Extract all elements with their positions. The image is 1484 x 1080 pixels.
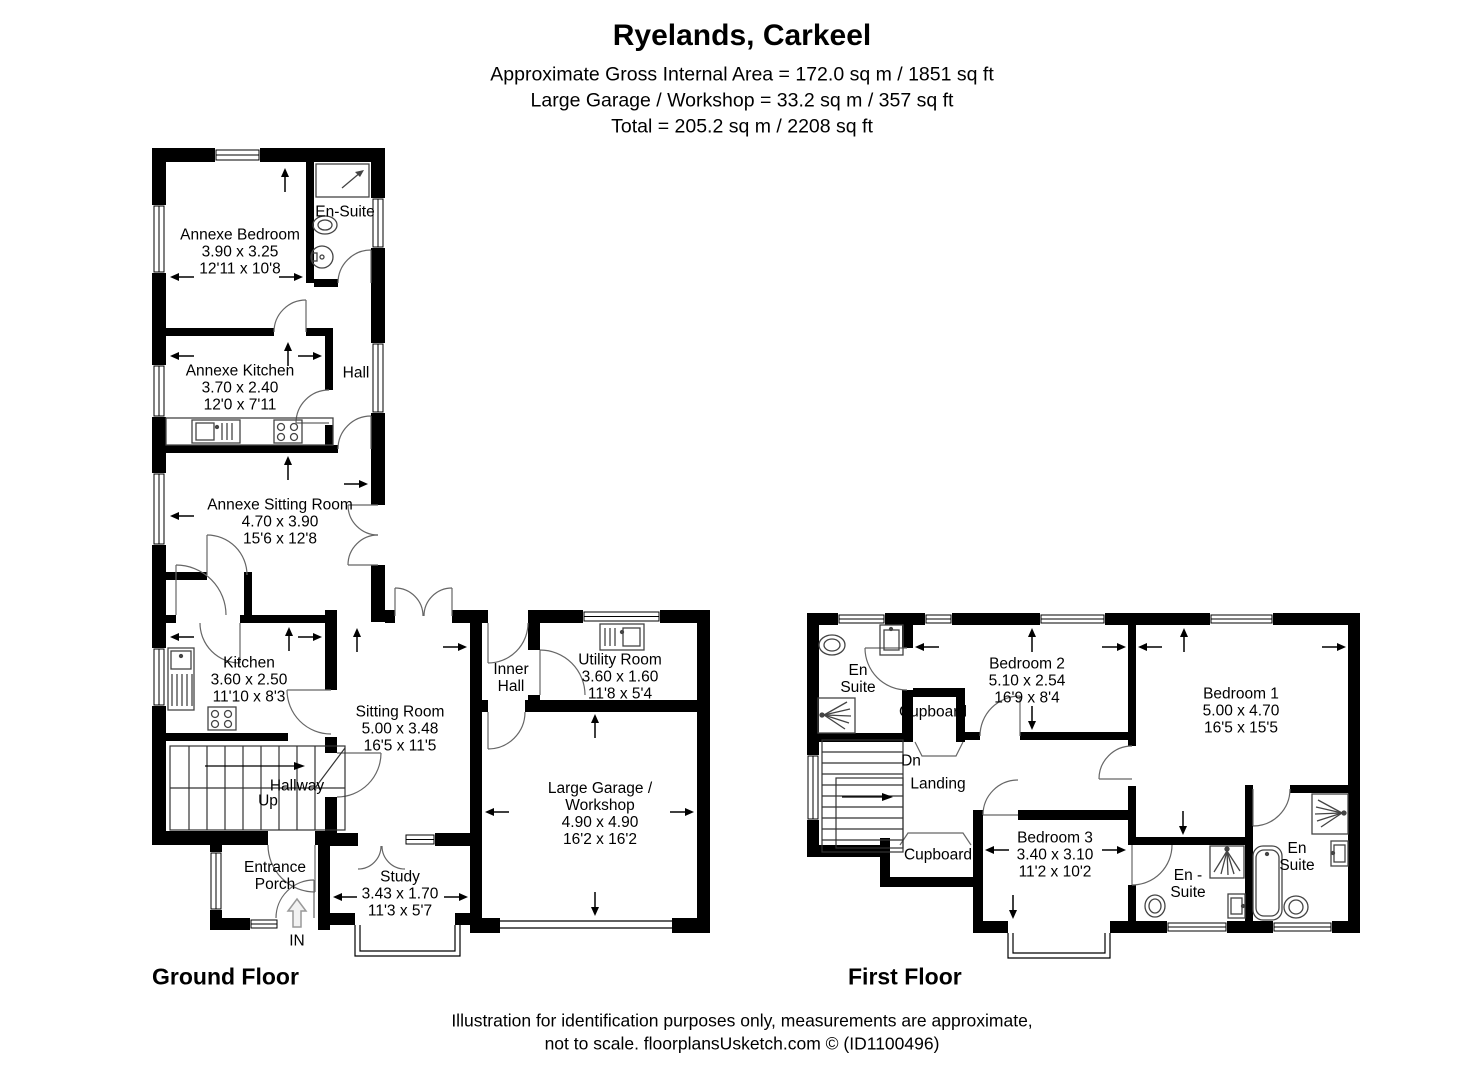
room-size-metric: 3.40 x 3.10 xyxy=(1017,847,1094,864)
room-name: Suite xyxy=(840,679,875,696)
room-name: Hall xyxy=(343,365,370,382)
room-name: En - xyxy=(1170,867,1205,884)
entrance-in-label: IN xyxy=(289,933,305,950)
room-size-imperial: 12'11 x 10'8 xyxy=(180,261,300,278)
room-name: Bedroom 3 xyxy=(1017,830,1094,847)
room-name: Up xyxy=(258,793,278,810)
room-label-annexe-bedroom: Annexe Bedroom 3.90 x 3.25 12'11 x 10'8 xyxy=(180,227,300,278)
room-label-bedroom-1: Bedroom 1 5.00 x 4.70 16'5 x 15'5 xyxy=(1203,686,1280,737)
room-name: Entrance xyxy=(244,859,306,876)
room-label-entrance-porch: Entrance Porch xyxy=(244,859,306,893)
folding-door xyxy=(915,742,963,756)
room-name: Cupboard xyxy=(904,847,972,864)
garage-door xyxy=(500,921,672,928)
utility-sink-icon xyxy=(600,624,644,650)
room-size-imperial: 15'6 x 12'8 xyxy=(207,531,353,548)
bath-icon xyxy=(1253,846,1282,920)
toilet-icon xyxy=(819,635,845,655)
floorplan-page: Ryelands, Carkeel Approximate Gross Inte… xyxy=(0,0,1484,1080)
room-size-metric: 3.60 x 1.60 xyxy=(578,669,662,686)
gross-internal-area: Approximate Gross Internal Area = 172.0 … xyxy=(490,64,993,87)
first-floor-plan xyxy=(807,613,1360,958)
toilet-icon xyxy=(1145,895,1165,917)
room-label-utility-room: Utility Room 3.60 x 1.60 11'8 x 5'4 xyxy=(578,652,662,703)
room-label-bedroom-3: Bedroom 3 3.40 x 3.10 11'2 x 10'2 xyxy=(1017,830,1094,881)
room-label-inner-hall: Inner Hall xyxy=(493,661,528,695)
room-size-metric: 4.90 x 4.90 xyxy=(548,814,652,831)
room-name: Bedroom 2 xyxy=(989,656,1066,673)
shower-icon xyxy=(316,164,369,197)
room-name: Kitchen xyxy=(211,655,288,672)
room-size-metric: 3.60 x 2.50 xyxy=(211,672,288,689)
room-name: Annexe Bedroom xyxy=(180,227,300,244)
room-size-imperial: 11'8 x 5'4 xyxy=(578,686,662,703)
room-size-metric: 3.70 x 2.40 xyxy=(186,380,295,397)
room-size-imperial: 11'10 x 8'3 xyxy=(211,689,288,706)
room-label-en-suite-3: En Suite xyxy=(1279,840,1314,874)
sink-icon xyxy=(311,246,333,268)
room-size-imperial: 16'9 x 8'4 xyxy=(989,690,1066,707)
room-label-annexe-kitchen: Annexe Kitchen 3.70 x 2.40 12'0 x 7'11 xyxy=(186,363,295,414)
room-name: IN xyxy=(289,933,305,950)
room-size-metric: 3.43 x 1.70 xyxy=(362,886,439,903)
room-label-en-suite-2: En - Suite xyxy=(1170,867,1205,901)
room-name: Utility Room xyxy=(578,652,662,669)
room-size-imperial: 11'3 x 5'7 xyxy=(362,903,439,920)
room-name: Dn xyxy=(901,753,921,770)
room-size-metric: 5.00 x 4.70 xyxy=(1203,703,1280,720)
room-name: Workshop xyxy=(548,797,652,814)
shower-icon xyxy=(818,698,855,733)
sink-unit-icon xyxy=(168,648,194,710)
room-name: Porch xyxy=(244,876,306,893)
room-size-metric: 3.90 x 3.25 xyxy=(180,244,300,261)
room-name: Hallway xyxy=(270,778,324,795)
room-label-cupboard-top: Cupboard xyxy=(899,704,967,721)
room-size-metric: 5.00 x 3.48 xyxy=(356,721,445,738)
room-name: Large Garage / xyxy=(548,780,652,797)
room-label-annexe-sitting-room: Annexe Sitting Room 4.70 x 3.90 15'6 x 1… xyxy=(207,497,353,548)
property-title: Ryelands, Carkeel xyxy=(613,19,871,53)
room-name: Annexe Kitchen xyxy=(186,363,295,380)
room-size-metric: 5.10 x 2.54 xyxy=(989,673,1066,690)
room-name: Annexe Sitting Room xyxy=(207,497,353,514)
folding-door xyxy=(900,833,971,845)
toilet-icon xyxy=(1284,896,1308,918)
room-name: Suite xyxy=(1279,857,1314,874)
room-size-imperial: 16'5 x 15'5 xyxy=(1203,720,1280,737)
sink-icon xyxy=(1228,894,1245,918)
room-name: Cupboard xyxy=(899,704,967,721)
sink-icon xyxy=(880,625,903,655)
room-name: En-Suite xyxy=(315,204,374,221)
room-name: Hall xyxy=(493,678,528,695)
room-label-en-suite-annexe: En-Suite xyxy=(315,204,374,221)
room-label-study: Study 3.43 x 1.70 11'3 x 5'7 xyxy=(362,869,439,920)
room-label-landing: Landing xyxy=(910,776,965,793)
disclaimer-line-2: not to scale. floorplansUsketch.com © (I… xyxy=(545,1034,940,1055)
stairs-down-label: Dn xyxy=(901,753,921,770)
bay-window xyxy=(355,925,460,956)
stairs-down xyxy=(822,740,903,852)
room-label-en-suite-1: En Suite xyxy=(840,662,875,696)
room-label-bedroom-2: Bedroom 2 5.10 x 2.54 16'9 x 8'4 xyxy=(989,656,1066,707)
ground-floor-title: Ground Floor xyxy=(152,964,299,991)
room-name: Inner xyxy=(493,661,528,678)
room-name: En xyxy=(840,662,875,679)
total-area: Total = 205.2 sq m / 2208 sq ft xyxy=(611,116,873,139)
room-name: Study xyxy=(362,869,439,886)
room-size-metric: 4.70 x 3.90 xyxy=(207,514,353,531)
room-label-cupboard-bottom: Cupboard xyxy=(904,847,972,864)
bay-window xyxy=(1008,933,1110,958)
stairs-up-label: Up xyxy=(258,793,278,810)
garage-workshop-area: Large Garage / Workshop = 33.2 sq m / 35… xyxy=(531,90,954,113)
room-size-imperial: 11'2 x 10'2 xyxy=(1017,864,1094,881)
hob-icon xyxy=(208,707,236,730)
room-name: Bedroom 1 xyxy=(1203,686,1280,703)
room-label-sitting-room: Sitting Room 5.00 x 3.48 16'5 x 11'5 xyxy=(356,704,445,755)
room-label-garage: Large Garage / Workshop 4.90 x 4.90 16'2… xyxy=(548,780,652,848)
shower-icon xyxy=(1210,846,1244,878)
room-size-imperial: 12'0 x 7'11 xyxy=(186,397,295,414)
sink-icon xyxy=(1331,841,1348,866)
room-name: Suite xyxy=(1170,884,1205,901)
room-label-kitchen: Kitchen 3.60 x 2.50 11'10 x 8'3 xyxy=(211,655,288,706)
shower-icon xyxy=(1312,794,1348,834)
first-floor-title: First Floor xyxy=(848,964,962,991)
first-walls xyxy=(807,613,1360,933)
room-size-imperial: 16'2 x 16'2 xyxy=(548,831,652,848)
room-label-hallway: Hallway xyxy=(270,778,324,795)
room-size-imperial: 16'5 x 11'5 xyxy=(356,738,445,755)
room-name: Landing xyxy=(910,776,965,793)
room-name: En xyxy=(1279,840,1314,857)
room-name: Sitting Room xyxy=(356,704,445,721)
disclaimer-line-1: Illustration for identification purposes… xyxy=(451,1011,1032,1032)
room-label-hall: Hall xyxy=(343,365,370,382)
kitchen-counter xyxy=(166,418,333,445)
